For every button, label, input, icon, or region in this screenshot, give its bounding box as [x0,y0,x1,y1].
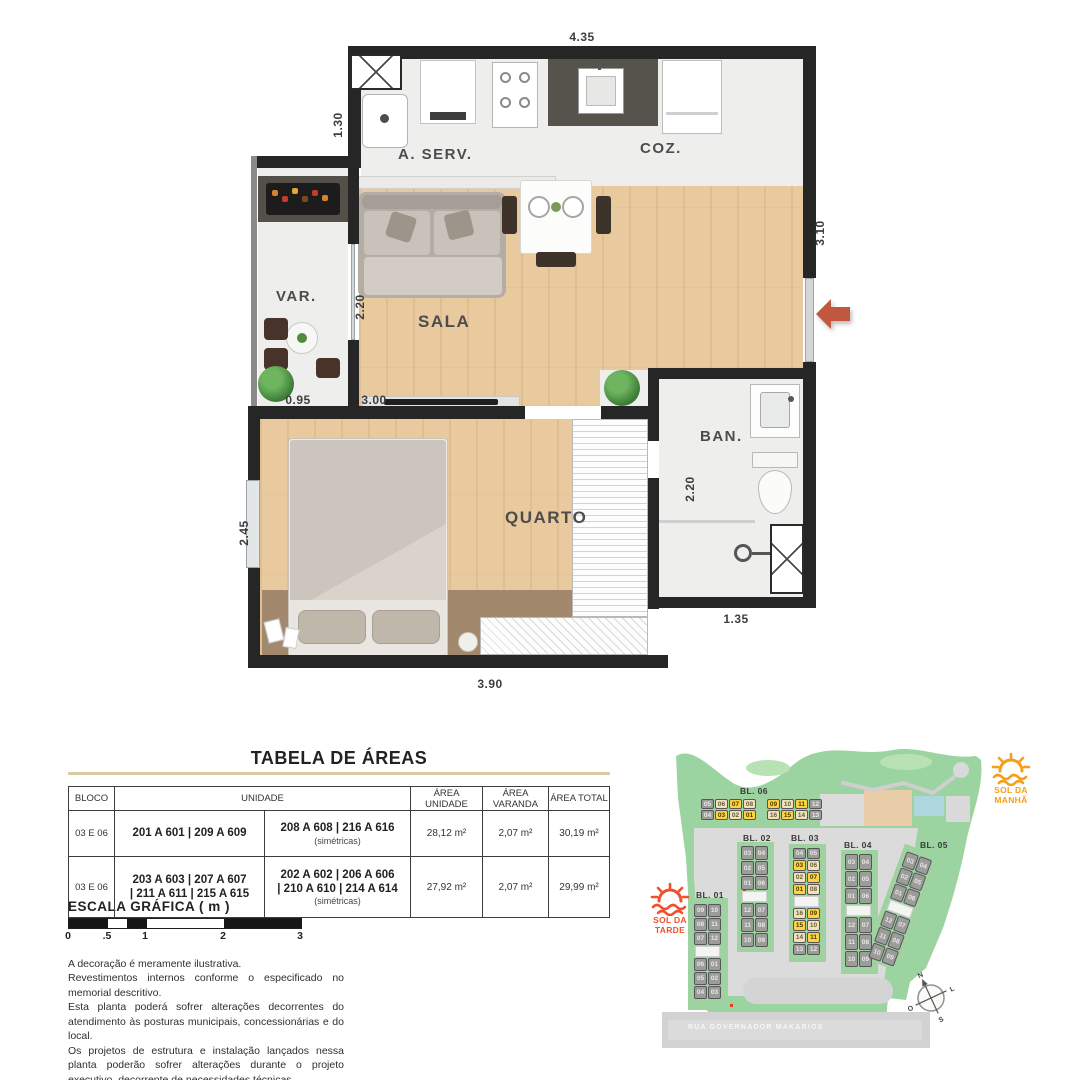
unit-cell: 03 [793,860,806,871]
block-label-bl01: BL. 01 [696,890,724,900]
shaft-box [350,54,402,90]
room-label-sala: SALA [418,312,470,332]
dimension-ban-right: 2.20 [683,467,697,511]
stove-burner [519,72,530,83]
unit-cell: 06 [859,888,872,904]
col-header-unidade: UNIDADE [115,787,411,811]
grill-food [282,196,288,202]
block-bl06: 05060708091011120403020116151413 [701,799,822,820]
unit-cell: 03 [708,986,721,999]
wall-segment [348,168,359,244]
unit-cell: 12 [845,917,858,933]
unit-note: (simétricas) [314,896,361,906]
table-cell-area-unidade: 28,12 m² [411,811,483,857]
unit-list: 202 A 602 | 206 A 606 | 210 A 610 | 214 … [277,868,397,897]
unit-cell: 02 [793,872,806,883]
table-cell-area-varanda: 2,07 m² [483,857,549,917]
street-name: RUA GOVERNADOR MAKARIOS [688,1024,823,1031]
entry-glass-door [805,278,814,362]
dining-table [520,180,592,254]
sun-icon [991,752,1031,786]
toilet-tank [752,452,798,468]
scale-bar [68,917,302,929]
unit-cell: 05 [859,871,872,887]
block-label-bl05: BL. 05 [920,840,948,850]
lawn-patch [880,754,932,770]
wall-segment [348,46,816,59]
lawn-patch [746,760,790,776]
pool [914,796,944,816]
block-core [757,799,766,809]
title-underline [68,772,610,775]
wall-segment [251,156,361,168]
sun-icon [650,882,690,916]
scale-segment [127,919,147,928]
table-cell-unidades: 208 A 608 | 216 A 616 (simétricas) [265,811,411,857]
unit-cell: 04 [701,810,714,820]
sun-afternoon-label-line2: TARDE [648,926,692,936]
wall-segment [248,655,668,668]
balcony-chair [264,318,288,340]
unit-cell: 02 [741,861,754,875]
col-header-bloco: BLOCO [69,787,115,811]
unit-cell: 03 [741,846,754,860]
table-cell-unidades: 203 A 603 | 207 A 607 | 211 A 611 | 215 … [115,857,265,917]
unit-cell: 07 [859,917,872,933]
unit-cell: 11 [845,934,858,950]
unit-list: 203 A 603 | 207 A 607 | 211 A 611 | 215 … [130,873,249,902]
unit-cell: 03 [715,810,728,820]
page: A. SERV. COZ. VAR. SALA QUARTO BAN. 4.35… [0,0,1080,1080]
block-label-bl06: BL. 06 [740,786,768,796]
kitchen-sink-basin [586,76,616,106]
unit-cell: 12 [708,932,721,945]
unit-cell: 10 [781,799,794,809]
unit-cell: 01 [741,876,754,890]
scale-tick: 1 [135,930,155,942]
dining-chair [536,252,576,267]
unit-cell: 15 [793,920,806,931]
unit-cell: 10 [807,920,820,931]
table-cell-area-unidade: 27,92 m² [411,857,483,917]
shower-divider [659,520,755,523]
unit-cell: 13 [793,944,806,955]
unit-cell: 01 [793,884,806,895]
patio [946,796,970,822]
disclaimer-line: Revestimentos internos conforme o especi… [68,971,344,1000]
unit-cell: 08 [743,799,756,809]
unit-cell: 06 [755,876,768,890]
table-cell-area-total: 29,99 m² [549,857,609,917]
unit-cell: 07 [755,903,768,917]
plate [562,196,584,218]
unit-cell: 16 [793,908,806,919]
laundry-tank-drain [380,114,389,123]
block-bl04: 030402050106120711081009 [845,854,872,967]
disclaimer-line: Os projetos de estrutura e instalação la… [68,1044,344,1080]
unit-cell: 14 [795,810,808,820]
unit-cell: 11 [807,932,820,943]
grill-food [272,190,278,196]
parking-area [820,794,864,826]
plant [604,370,640,406]
unit-cell: 02 [708,972,721,985]
unit-cell: 09 [807,908,820,919]
unit-cell: 12 [741,903,754,917]
unit-cell: 12 [809,799,822,809]
table-cell-area-varanda: 2,07 m² [483,811,549,857]
scale-segment [69,919,108,928]
unit-cell: 02 [729,810,742,820]
wall-segment [648,368,816,379]
dimension-aserv-left: 1.30 [331,103,345,147]
grill-food [302,196,308,202]
room-label-aserv: A. SERV. [398,146,473,163]
entry-arrow-icon [816,296,850,332]
unit-cell: 04 [793,848,806,859]
unit-cell: 09 [694,904,707,917]
room-label-coz: COZ. [640,140,682,157]
scale-tick: 2 [213,930,233,942]
unit-cell: 06 [694,958,707,971]
path-plaza [953,762,969,778]
room-label-quarto: QUARTO [505,508,587,528]
bathroom-basin [760,392,790,428]
unit-cell: 10 [741,933,754,947]
scale-segment [224,919,301,928]
sun-afternoon: SOL DA TARDE [648,882,692,936]
scale-tick: .5 [97,930,117,942]
unit-cell: 08 [859,934,872,950]
unit-cell: 10 [845,951,858,967]
bed-pillow [372,610,440,644]
dimension-var-bottom: 0.95 [278,393,318,407]
unit-list: 201 A 601 | 209 A 609 [132,826,246,840]
stove [492,62,538,128]
unit-cell: 08 [807,884,820,895]
table-cell-unidades: 201 A 601 | 209 A 609 [115,811,265,857]
plate [528,196,550,218]
compass-s: S [938,1016,945,1024]
unit-cell: 11 [708,918,721,931]
unit-cell: 12 [807,944,820,955]
dimension-quarto-bottom: 3.90 [466,677,514,691]
unit-cell: 04 [694,986,707,999]
room-label-ban: BAN. [700,428,743,445]
dining-chair [502,196,517,234]
marker-dot [730,1004,733,1007]
balcony-parapet [251,156,257,418]
wall-segment [601,406,648,419]
unit-cell: 06 [715,799,728,809]
centerpiece [551,202,561,212]
dining-chair [596,196,611,234]
unit-cell: 04 [755,846,768,860]
sofa-seat [364,257,502,295]
unit-cell: 03 [845,854,858,870]
unit-cell: 14 [793,932,806,943]
unit-cell: 07 [807,872,820,883]
block-core [757,810,766,820]
block-bl02: 030402050106120711081009 [741,846,768,947]
wall-segment [648,597,816,608]
table-cell-unidades: 202 A 602 | 206 A 606 | 210 A 610 | 214 … [265,857,411,917]
dimension-quarto-left: 2.45 [237,511,251,555]
unit-cell: 07 [729,799,742,809]
compass-l: L [949,985,956,993]
site-plan: N L S O RUA GOVERNADOR MAKARIOS BL. 06 B… [648,738,1080,1070]
grill-food [292,188,298,194]
block-bl03: 04050306020701081609151014111312 [793,848,820,955]
block-core [794,896,819,907]
kitchen-cabinet-handle [430,112,466,120]
fridge-line [666,112,718,115]
balcony-chair [316,358,340,378]
entry-arrow-shape [816,299,850,329]
wall-segment [648,379,659,441]
table-plant [297,333,307,343]
table-cell-bloco: 03 E 06 [69,811,115,857]
sofa-back [362,195,502,209]
areas-table: BLOCO UNIDADE ÁREA UNIDADE ÁREA VARANDA … [68,786,610,918]
room-label-var: VAR. [276,288,317,305]
dimension-ban-bottom: 1.35 [714,612,758,626]
col-header-area-unidade: ÁREA UNIDADE [411,787,483,811]
unit-cell: 09 [755,933,768,947]
block-bl01: 091008110712060105020403 [694,904,721,999]
dimension-top: 4.35 [560,30,604,44]
unit-cell: 02 [845,871,858,887]
drive [743,978,893,1004]
dimension-sala-bottom: 3.00 [354,393,394,407]
bathroom-faucet [788,396,794,402]
unit-cell: 05 [694,972,707,985]
unit-cell: 06 [807,860,820,871]
unit-cell: 13 [809,810,822,820]
wall-segment [803,362,816,608]
shaft-box [770,524,804,594]
scale-tick: 0 [58,930,78,942]
areas-table-title: TABELA DE ÁREAS [68,748,610,769]
unit-cell: 16 [767,810,780,820]
unit-cell: 01 [743,810,756,820]
unit-cell: 01 [708,958,721,971]
disclaimer-text: A decoração é meramente ilustrativa.Reve… [68,957,344,1080]
wall-segment [648,478,659,609]
compass-n: N [917,972,925,980]
wardrobe-lower [480,617,648,655]
dimension-right: 3.10 [813,211,827,255]
grill-food [322,195,328,201]
block-label-bl03: BL. 03 [791,833,819,843]
sun-morning-label-line2: MANHÃ [989,796,1033,806]
unit-cell: 09 [767,799,780,809]
col-header-area-total: ÁREA TOTAL [549,787,609,811]
pool-deck [864,790,912,826]
grill-food [312,190,318,196]
scale-tick: 3 [290,930,310,942]
unit-list: 208 A 608 | 216 A 616 [280,821,394,835]
wall-segment [248,406,525,419]
block-core [695,946,720,957]
bed-pillow [298,610,366,644]
unit-cell: 15 [781,810,794,820]
unit-cell: 08 [694,918,707,931]
unit-cell: 04 [859,854,872,870]
disclaimer-line: Esta planta poderá sofrer alterações dec… [68,1000,344,1043]
stove-burner [500,97,511,108]
stove-burner [519,97,530,108]
table-cell-area-total: 30,19 m² [549,811,609,857]
unit-note: (simétricas) [314,836,361,846]
stove-burner [500,72,511,83]
unit-cell: 11 [795,799,808,809]
fridge [662,60,722,134]
table-cell-bloco: 03 E 06 [69,857,115,917]
unit-cell: 11 [741,918,754,932]
unit-cell: 01 [845,888,858,904]
dimension-sala-left: 2.20 [353,285,367,329]
col-header-area-varanda: ÁREA VARANDA [483,787,549,811]
unit-cell: 05 [755,861,768,875]
unit-cell: 05 [807,848,820,859]
unit-cell: 08 [755,918,768,932]
block-label-bl02: BL. 02 [743,833,771,843]
unit-cell: 10 [708,904,721,917]
unit-cell: 05 [701,799,714,809]
pouf [458,632,478,652]
block-core [846,905,871,916]
sun-morning: SOL DA MANHÃ [989,752,1033,806]
shower-head [734,544,752,562]
unit-cell: 07 [694,932,707,945]
disclaimer-line: A decoração é meramente ilustrativa. [68,957,344,971]
block-core [742,891,767,902]
tv [384,399,498,405]
block-label-bl04: BL. 04 [844,840,872,850]
